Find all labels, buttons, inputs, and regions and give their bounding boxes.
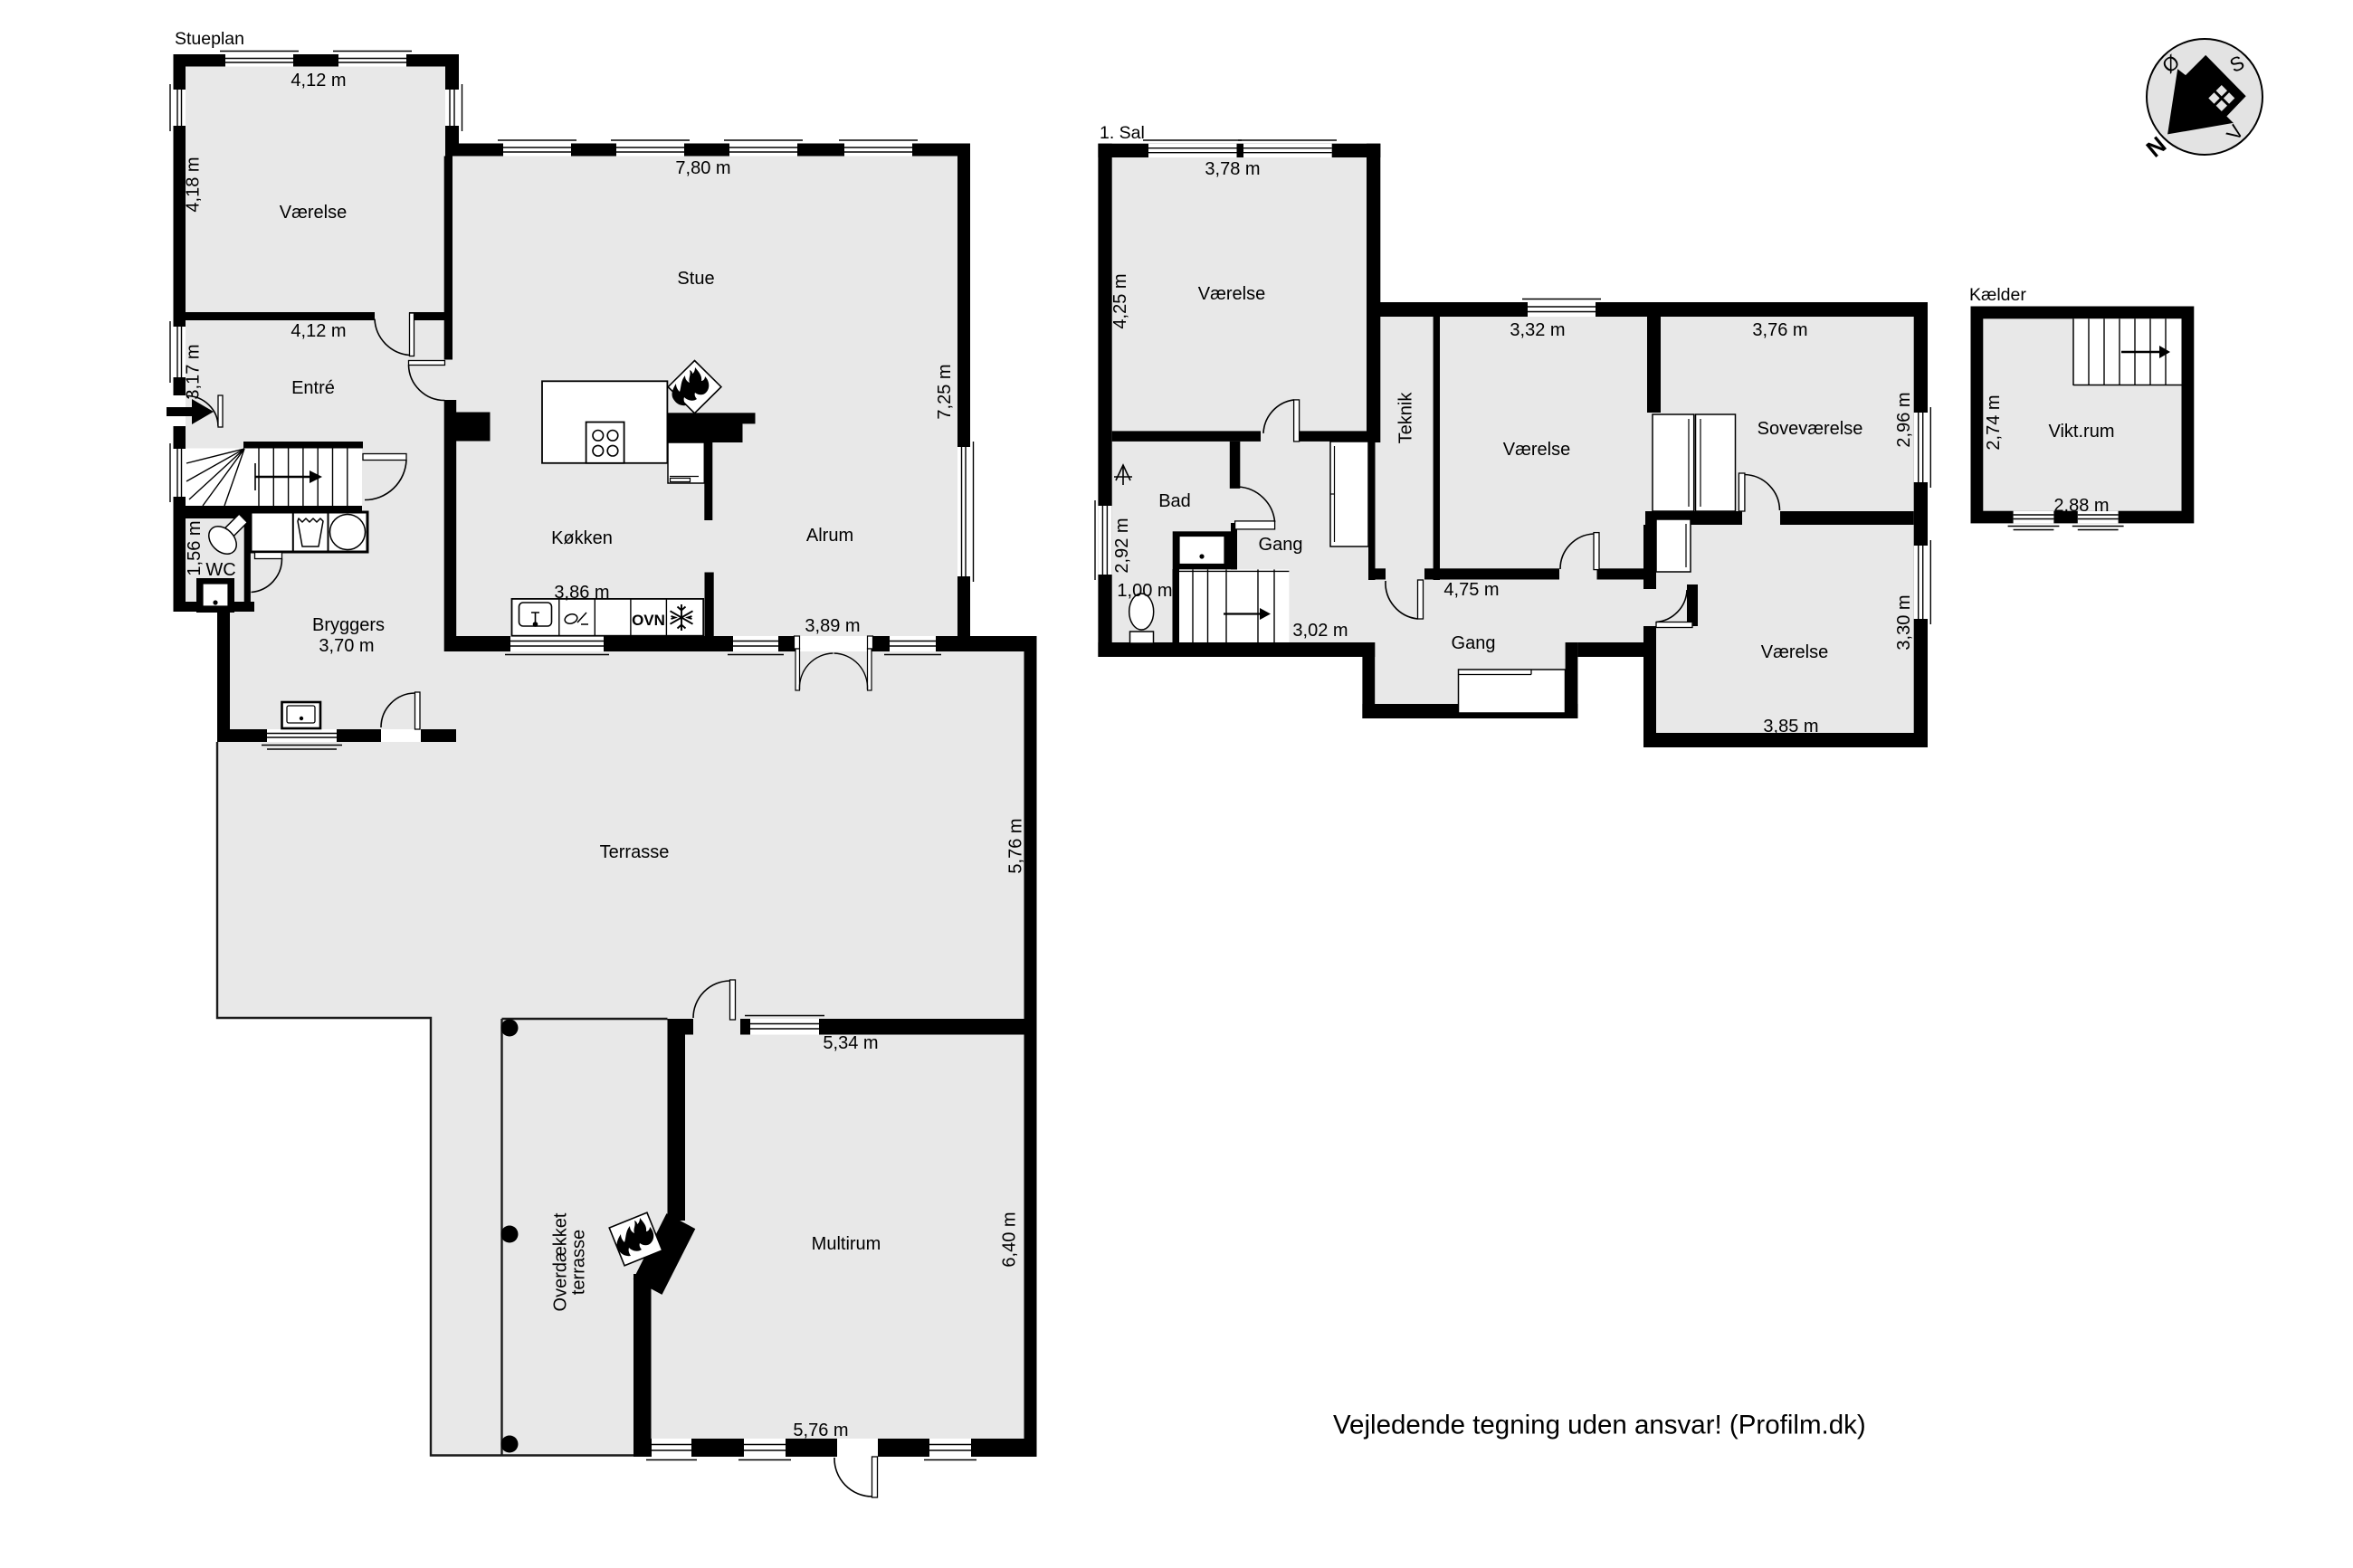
- svg-text:3,89 m: 3,89 m: [805, 616, 860, 636]
- svg-text:Overdækket: Overdækket: [551, 1212, 571, 1311]
- svg-text:Vikt.rum: Vikt.rum: [2049, 422, 2115, 442]
- svg-text:1,56 m: 1,56 m: [185, 520, 205, 575]
- svg-text:3,86 m: 3,86 m: [554, 583, 609, 603]
- svg-text:Værelse: Værelse: [1503, 440, 1570, 460]
- svg-text:Soveværelse: Soveværelse: [1758, 419, 1863, 439]
- svg-text:Vejledende tegning uden ansvar: Vejledende tegning uden ansvar! (Profilm…: [1333, 1411, 1866, 1440]
- svg-text:WC: WC: [205, 560, 235, 580]
- svg-text:Alrum: Alrum: [806, 526, 853, 546]
- svg-text:OVN: OVN: [632, 612, 665, 629]
- svg-text:3,85 m: 3,85 m: [1763, 717, 1818, 736]
- svg-text:3,78 m: 3,78 m: [1205, 159, 1260, 179]
- svg-text:6,40 m: 6,40 m: [1000, 1212, 1020, 1267]
- svg-text:Multirum: Multirum: [812, 1234, 881, 1254]
- svg-text:3,02 m: 3,02 m: [1292, 621, 1348, 641]
- svg-text:Værelse: Værelse: [280, 203, 347, 223]
- svg-text:Entré: Entré: [291, 378, 335, 398]
- svg-text:3,70 m: 3,70 m: [319, 636, 374, 656]
- svg-text:Teknik: Teknik: [1396, 392, 1416, 444]
- svg-text:2,74 m: 2,74 m: [1984, 394, 2004, 450]
- svg-text:7,25 m: 7,25 m: [935, 364, 955, 419]
- svg-text:Bryggers: Bryggers: [312, 615, 385, 635]
- svg-text:5,34 m: 5,34 m: [823, 1033, 878, 1053]
- svg-text:3,76 m: 3,76 m: [1752, 320, 1807, 340]
- svg-text:4,25 m: 4,25 m: [1110, 273, 1130, 328]
- svg-text:Gang: Gang: [1259, 535, 1303, 555]
- svg-text:7,80 m: 7,80 m: [675, 158, 730, 178]
- svg-text:Terrasse: Terrasse: [600, 842, 670, 862]
- svg-text:4,12 m: 4,12 m: [291, 321, 346, 341]
- svg-text:Gang: Gang: [1452, 633, 1496, 653]
- svg-text:2,96 m: 2,96 m: [1894, 392, 1914, 447]
- svg-text:3,32 m: 3,32 m: [1510, 320, 1565, 340]
- svg-text:4,12 m: 4,12 m: [291, 71, 346, 90]
- svg-text:terrasse: terrasse: [569, 1230, 589, 1295]
- svg-text:4,18 m: 4,18 m: [184, 157, 204, 212]
- svg-text:1. Sal: 1. Sal: [1100, 123, 1145, 143]
- svg-text:3,17 m: 3,17 m: [184, 344, 204, 399]
- svg-text:Bad: Bad: [1158, 491, 1191, 511]
- svg-text:Værelse: Værelse: [1198, 284, 1265, 304]
- svg-text:1,00 m: 1,00 m: [1117, 581, 1172, 601]
- svg-text:Kælder: Kælder: [1969, 285, 2026, 305]
- svg-text:Stue: Stue: [677, 269, 714, 289]
- svg-text:5,76 m: 5,76 m: [1006, 818, 1026, 873]
- svg-text:4,75 m: 4,75 m: [1443, 580, 1499, 600]
- svg-text:5,76 m: 5,76 m: [793, 1421, 848, 1440]
- svg-text:Værelse: Værelse: [1761, 642, 1828, 662]
- svg-text:2,92 m: 2,92 m: [1112, 518, 1132, 573]
- svg-text:Køkken: Køkken: [551, 528, 613, 548]
- svg-text:Stueplan: Stueplan: [175, 29, 244, 49]
- svg-text:2,88 m: 2,88 m: [2053, 496, 2109, 516]
- svg-text:3,30 m: 3,30 m: [1894, 594, 1914, 650]
